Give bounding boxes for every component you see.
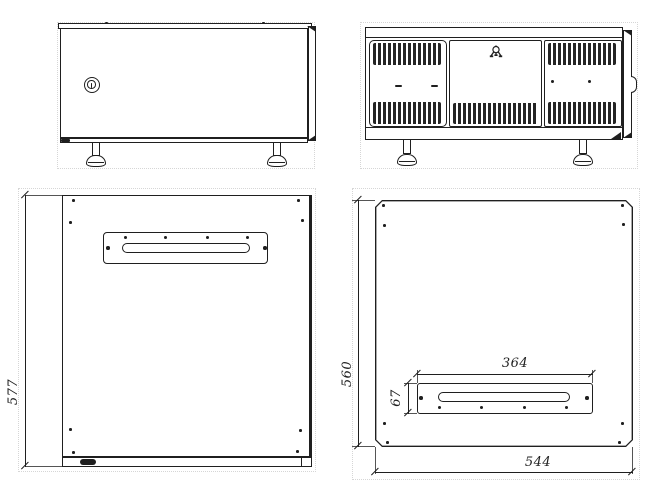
lock-icon (84, 77, 100, 93)
rivet-dot (382, 204, 385, 207)
dimension-line-364 (417, 374, 593, 375)
screw-slot (431, 85, 438, 87)
ground-icon (488, 45, 504, 60)
dimension-label-plate-width: 364 (480, 357, 550, 370)
rivet-dot (301, 219, 304, 222)
front-right-flange (308, 26, 316, 141)
rivet-dot (72, 199, 75, 202)
vent-grille (373, 102, 441, 124)
leveling-foot-base (86, 155, 106, 167)
extension-line (25, 466, 62, 467)
gland-plate-slot (122, 243, 250, 253)
screw-dot (438, 406, 441, 409)
base-bracket (301, 457, 312, 467)
screw-dot (246, 236, 249, 239)
screw-slot (395, 85, 402, 87)
rivet-dot (618, 441, 621, 444)
dimension-label-plate-height: 67 (383, 385, 409, 411)
screw-dot (523, 406, 526, 409)
screw-dot (263, 246, 267, 250)
screw-dot (106, 246, 110, 250)
screw-dot (164, 236, 167, 239)
rivet-dot (296, 450, 299, 453)
leveling-foot-base (267, 155, 287, 167)
rivet-dot (299, 429, 302, 432)
rivet-dot (622, 223, 625, 226)
screw-dot (419, 396, 423, 400)
vent-grille (373, 43, 441, 65)
vent-grille (548, 43, 616, 65)
dimension-label-side-height: 577 (0, 379, 26, 405)
leveling-foot-stem (403, 140, 411, 154)
screw-dot (206, 236, 209, 239)
screw-dot (551, 80, 554, 83)
rivet-dot (69, 221, 72, 224)
extension-line (25, 195, 62, 196)
side-bottom-strip (62, 457, 312, 467)
rivet-dot (383, 422, 386, 425)
base-mark (61, 139, 70, 142)
dimension-line-544 (375, 472, 633, 473)
rivet-dot (621, 422, 624, 425)
rivet-dot (297, 199, 300, 202)
dimension-label-bottom-height: 560 (333, 360, 361, 388)
base-mark (80, 459, 96, 465)
rivet-dot (621, 204, 624, 207)
vent-grille (548, 102, 616, 124)
screw-dot (588, 80, 591, 83)
screw-dot (585, 396, 589, 400)
dimension-line-560 (358, 200, 359, 447)
rear-top-strip-line (365, 37, 623, 38)
rear-bottom-strip-line (365, 127, 623, 128)
dimension-line-577 (25, 195, 26, 467)
screw-dot (480, 406, 483, 409)
screw-dot (124, 236, 127, 239)
rivet-dot (383, 224, 386, 227)
leveling-foot-base (573, 154, 593, 166)
top-strip-tab (262, 22, 265, 24)
vent-grille (453, 103, 538, 124)
technical-drawing-canvas: 577 364 (0, 0, 650, 500)
rivet-dot (69, 428, 72, 431)
rivet-dot (72, 451, 75, 454)
gland-plate-slot (438, 392, 570, 402)
rivet-dot (386, 441, 389, 444)
leveling-foot-stem (579, 140, 587, 154)
dimension-label-bottom-width: 544 (505, 456, 571, 469)
top-strip-tab (105, 22, 108, 24)
front-view (0, 0, 650, 16)
leveling-foot-base (397, 154, 417, 166)
screw-dot (565, 406, 568, 409)
